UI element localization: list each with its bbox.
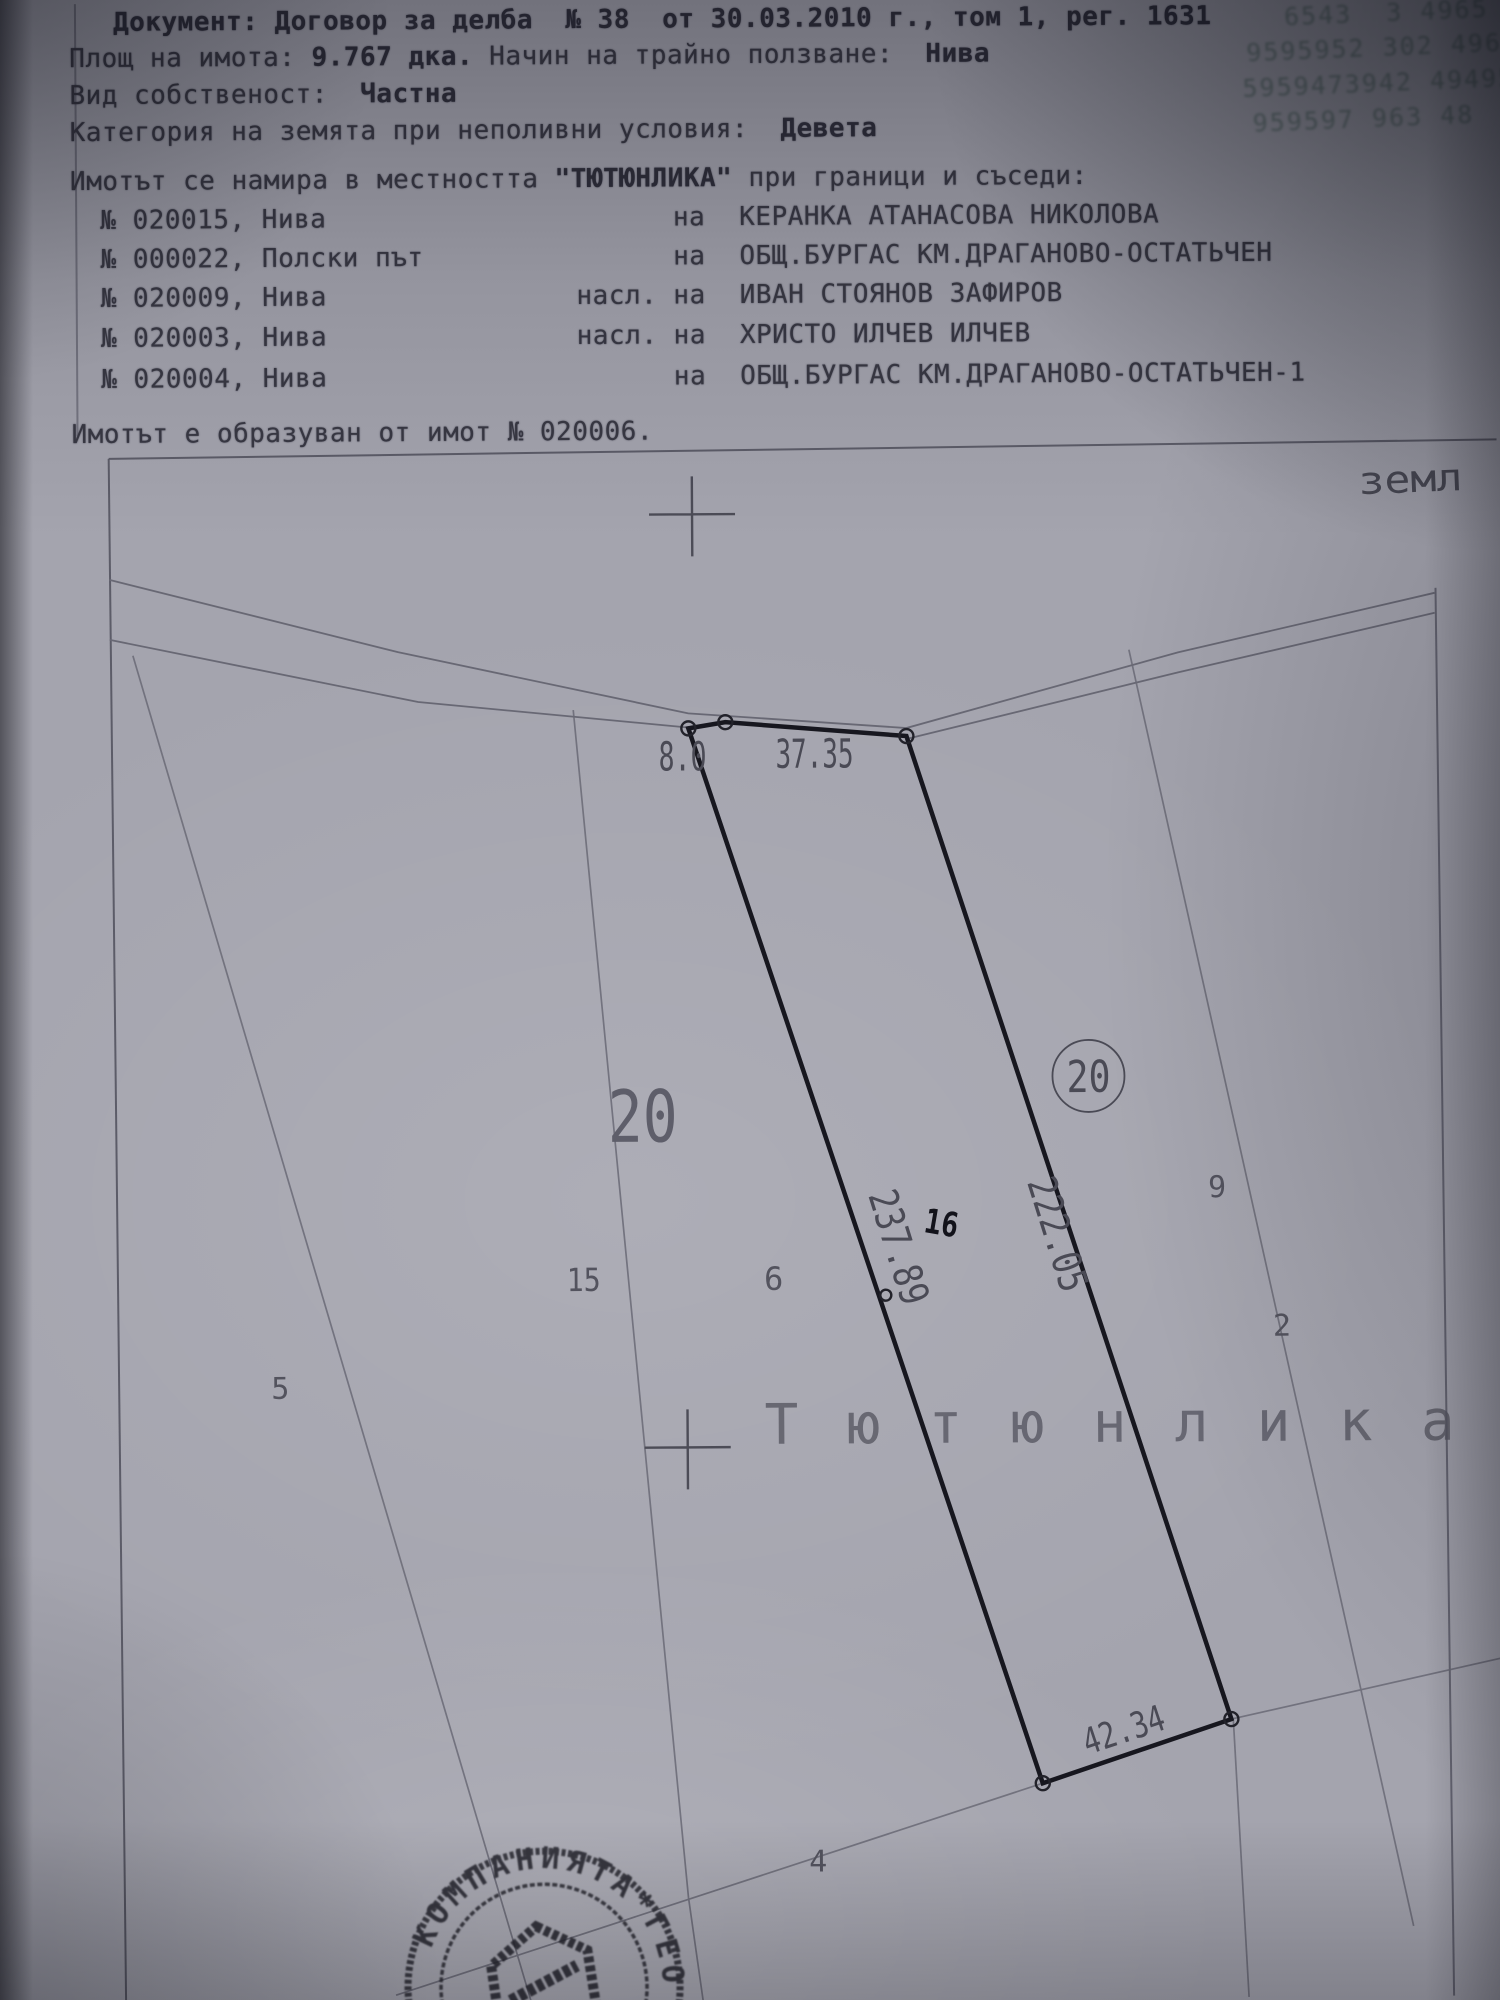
- cadastral-map: 8.0 37.35 237.89 222.05 42.34 16 20 20 1…: [0, 0, 1500, 2000]
- parcel-boundary-lines: [133, 647, 1500, 2000]
- locality-spaced-label: Тютюнлика: [764, 1389, 1454, 1458]
- circled-20-label: 20: [1066, 1052, 1110, 1103]
- region-label-15: 15: [567, 1261, 601, 1299]
- edge-label-left: 237.89: [858, 1184, 937, 1310]
- map-frame: [109, 439, 1500, 2000]
- region-label-big-20: 20: [607, 1074, 678, 1158]
- vertex-marker: [681, 712, 1239, 1792]
- edge-label-top: 37.35: [775, 731, 853, 777]
- register-cross-icon: [639, 476, 741, 1490]
- region-label-2: 2: [1273, 1309, 1291, 1344]
- edge-label-top-left: 8.0: [658, 734, 706, 780]
- edge-label-right: 222.05: [1017, 1171, 1096, 1297]
- document-content: 6543 3 4965 9595952 302 4965 1 595947394…: [0, 0, 1500, 2000]
- map-corner-label: земл: [1357, 455, 1463, 503]
- parcel-polygon: [681, 712, 1239, 1792]
- region-label-4: 4: [809, 1845, 827, 1880]
- photographed-cadastral-document: 6543 3 4965 9595952 302 4965 1 595947394…: [0, 0, 1500, 2000]
- region-label-6: 6: [764, 1260, 783, 1298]
- parcel-number-label: 16: [921, 1201, 961, 1246]
- road-lines: [109, 572, 1435, 744]
- region-label-5: 5: [271, 1372, 289, 1407]
- circled-20-badge: 20: [1052, 1040, 1124, 1112]
- region-label-9: 9: [1208, 1170, 1226, 1205]
